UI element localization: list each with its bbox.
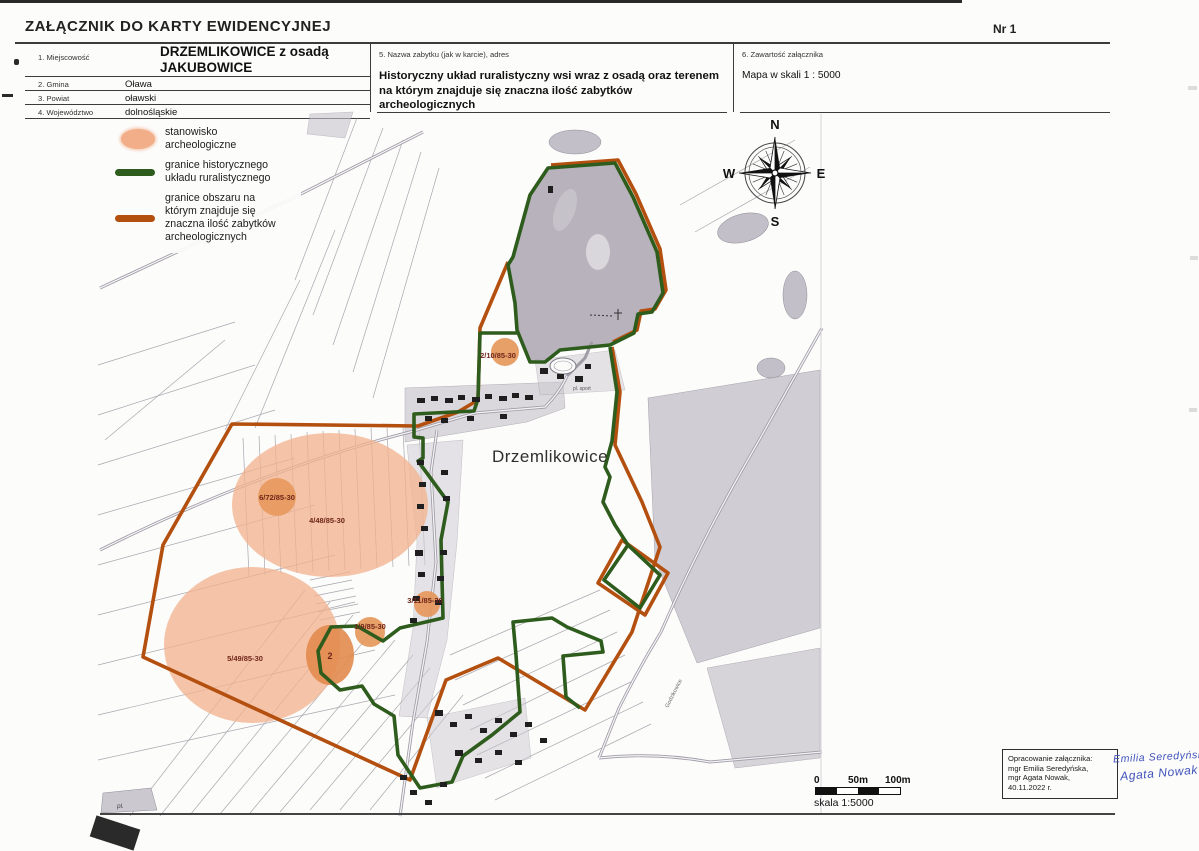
field-label: 4. Województwo (38, 108, 93, 117)
scale-tick: 100m (885, 775, 911, 786)
site-label: 6/72/85-30 (259, 493, 295, 502)
attribution-line: 40.11.2022 r. (1008, 783, 1114, 793)
page-number: Nr 1 (993, 22, 1016, 36)
legend-label: stanowisko archeologiczne (165, 126, 287, 152)
field-value: oławski (125, 93, 156, 104)
compass-e: E (817, 166, 826, 181)
record-form: 1. Miejscowość DRZEMLIKOWICE z osadą JAK… (15, 42, 1110, 118)
field-label: 1. Miejscowość (38, 53, 89, 62)
compass-w: W (723, 166, 736, 181)
scan-corner (90, 815, 141, 850)
archaeological-area-boundary-swatch (115, 215, 155, 222)
attribution-box: Opracowanie załącznika: mgr Emilia Sered… (1002, 749, 1118, 799)
form-row-gmina: 2. Gmina Oława (25, 76, 370, 91)
scan-edge-top (0, 0, 962, 3)
form-divider (733, 42, 734, 112)
historic-boundary-swatch (115, 169, 155, 176)
legend-item-area-boundary: granice obszaru na którym znajduje się z… (107, 192, 297, 244)
field-label: 6. Zawartość załącznika (742, 50, 823, 59)
legend-item-site: stanowisko archeologiczne (107, 126, 297, 152)
form-row-powiat: 3. Powiat oławski (25, 90, 370, 105)
attribution-line: mgr Agata Nowak, (1008, 773, 1114, 783)
field-label: 2. Gmina (38, 80, 69, 89)
scale-ticks: 0 50m 100m (812, 775, 922, 787)
scale-tick: 50m (848, 775, 868, 786)
site-label: 1/9/85-30 (354, 622, 386, 631)
minor-label-pl: pl. (116, 803, 124, 810)
map-legend: stanowisko archeologiczne granice histor… (103, 124, 301, 253)
scan-smudge (1189, 408, 1197, 412)
site-label: 2 (327, 651, 332, 661)
compass-n: N (770, 117, 779, 132)
site-label: 5/49/85-30 (227, 654, 263, 663)
site-label: 4/48/85-30 (309, 516, 345, 525)
scanned-page: { "header": { "title": "ZAŁĄCZNIK DO KAR… (0, 0, 1199, 836)
site-label: 2/10/85-30 (480, 351, 516, 360)
form-field-monument: 5. Nazwa zabytku (jak w karcie), adres H… (377, 42, 727, 113)
legend-label: granice historycznego układu ruralistycz… (165, 159, 287, 185)
bottom-rule (100, 813, 1115, 815)
minor-label-road: Godzikowice (664, 678, 684, 709)
scan-smudge (1188, 86, 1197, 90)
village-label: Drzemlikowice (492, 447, 608, 466)
field-label: 3. Powiat (38, 94, 69, 103)
field-value: Oława (125, 79, 152, 90)
scale-bar: 0 50m 100m skala 1:5000 (812, 775, 922, 809)
scale-bar-segments (815, 787, 901, 795)
compass-s: S (771, 214, 780, 229)
form-divider (370, 42, 371, 112)
attribution-line: mgr Emilia Seredyńska, (1008, 764, 1114, 774)
archaeological-site-swatch (121, 129, 155, 149)
scan-mark (2, 94, 13, 97)
legend-label: granice obszaru na którym znajduje się z… (165, 192, 287, 244)
form-field-attachment: 6. Zawartość załącznika Mapa w skali 1 :… (740, 42, 1110, 113)
field-value: Historyczny układ ruralistyczny wsi wraz… (379, 69, 724, 113)
field-value: Mapa w skali 1 : 5000 (742, 70, 841, 81)
minor-label-sport: pl. sport (573, 386, 591, 392)
field-value: DRZEMLIKOWICE z osadą JAKUBOWICE (160, 44, 375, 76)
form-row-miejscowosc: 1. Miejscowość DRZEMLIKOWICE z osadą JAK… (25, 42, 370, 77)
page-title: ZAŁĄCZNIK DO KARTY EWIDENCYJNEJ (25, 18, 331, 35)
scale-tick: 0 (814, 775, 820, 786)
field-label: 5. Nazwa zabytku (jak w karcie), adres (379, 50, 509, 59)
scale-caption: skala 1:5000 (814, 797, 922, 809)
signature-handwriting: Agata Nowak (1120, 763, 1199, 784)
scan-smudge (1190, 256, 1198, 260)
attribution-line: Opracowanie załącznika: (1008, 754, 1114, 764)
legend-item-historic-boundary: granice historycznego układu ruralistycz… (107, 159, 297, 185)
site-label: 3/11/85-30 (407, 596, 442, 605)
compass-rose-icon: N E S W (705, 113, 845, 238)
